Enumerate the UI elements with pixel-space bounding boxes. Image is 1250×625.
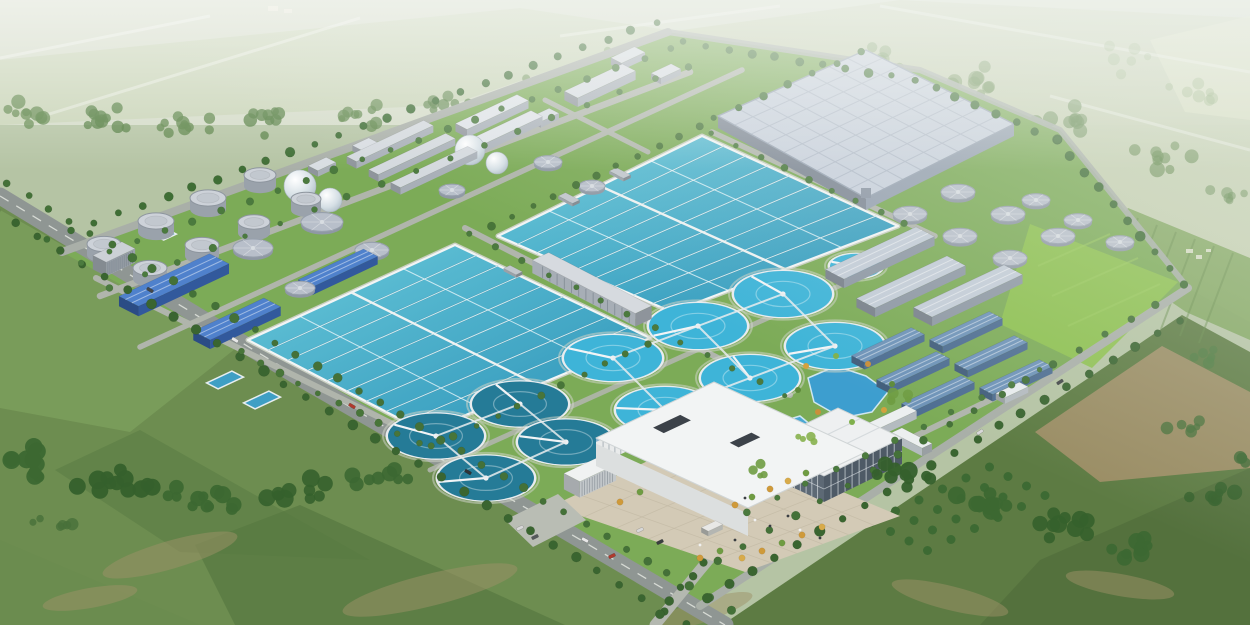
scene-svg: [0, 0, 1250, 625]
atmospheric-haze-ne: [0, 0, 1250, 625]
aerial-rendering-wastewater-treatment-plant: Aerial rendering of a wastewater treatme…: [0, 0, 1250, 625]
